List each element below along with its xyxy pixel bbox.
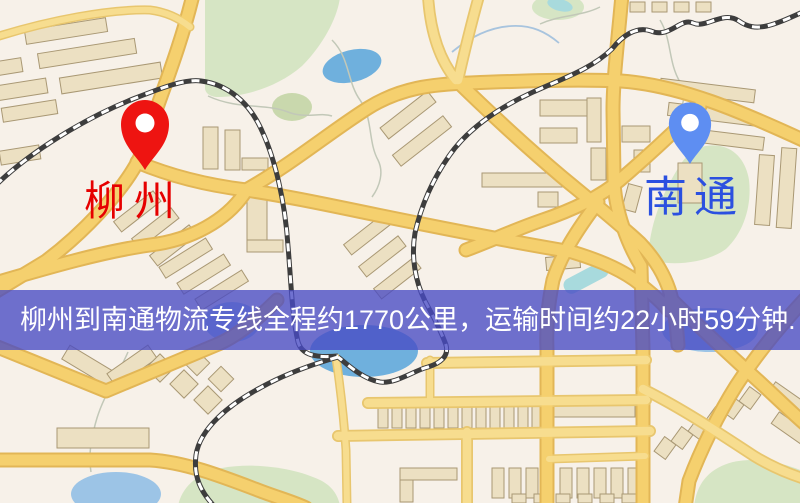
route-info-text: 柳州到南通物流专线全程约1770公里，运输时间约22小时59分钟.	[0, 290, 800, 350]
origin-city-label: 柳州	[84, 181, 184, 222]
map-canvas	[0, 0, 800, 503]
map-image: 柳州 南通 柳州到南通物流专线全程约1770公里，运输时间约22小时59分钟.	[0, 0, 800, 503]
route-info-banner: 柳州到南通物流专线全程约1770公里，运输时间约22小时59分钟.	[0, 290, 800, 350]
destination-city-label: 南通	[644, 177, 744, 220]
